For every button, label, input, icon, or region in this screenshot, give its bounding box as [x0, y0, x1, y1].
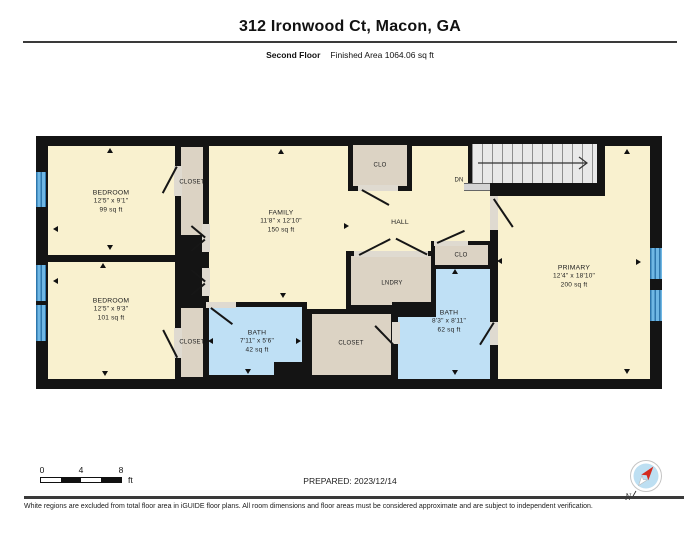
label-bath-large: BATH 8'3" x 8'11" 62 sq ft	[432, 310, 466, 335]
prepared-date: PREPARED: 2023/12/14	[0, 476, 700, 486]
label-hall: HALL	[391, 219, 409, 227]
direction-arrow-icon	[344, 223, 349, 229]
label-clo-small: CLO	[455, 252, 468, 260]
direction-arrow-icon	[102, 371, 108, 376]
direction-arrow-icon	[636, 259, 641, 265]
window	[650, 290, 662, 321]
floor-plan: BEDROOM 12'5" x 9'1" 99 sq ft BEDROOM 12…	[36, 136, 662, 389]
stairs-direction-arrow	[472, 144, 597, 183]
direction-arrow-icon	[452, 269, 458, 274]
window	[36, 265, 46, 301]
scale-tick-labels: 0 4 8	[40, 465, 122, 475]
wall-segment	[392, 302, 436, 317]
direction-arrow-icon	[280, 293, 286, 298]
finished-area-label: Finished Area 1064.06 sq ft	[330, 50, 434, 60]
floor-plan-sheet: { "header": { "title": "312 Ironwood Ct,…	[0, 0, 700, 541]
page-title: 312 Ironwood Ct, Macon, GA	[0, 18, 700, 36]
window	[650, 248, 662, 279]
label-family: FAMILY 11'8" x 12'10" 150 sq ft	[260, 210, 302, 235]
label-bedroom-1: BEDROOM 12'5" x 9'1" 99 sq ft	[93, 190, 130, 215]
direction-arrow-icon	[497, 258, 502, 264]
direction-arrow-icon	[107, 245, 113, 250]
closet-bedroom-1	[181, 147, 203, 235]
floor-label: Second Floor	[266, 50, 320, 60]
label-closet-bottom: CLOSET	[338, 340, 363, 348]
door-opening	[392, 322, 400, 344]
direction-arrow-icon	[624, 149, 630, 154]
floor-subtitle: Second FloorFinished Area 1064.06 sq ft	[0, 50, 700, 60]
direction-arrow-icon	[296, 338, 301, 344]
direction-arrow-icon	[624, 369, 630, 374]
label-primary: PRIMARY 12'4" x 18'10" 200 sq ft	[553, 265, 595, 290]
wall-notch	[274, 362, 310, 379]
window	[36, 172, 46, 207]
direction-arrow-icon	[100, 263, 106, 268]
staircase	[468, 140, 601, 187]
window	[36, 305, 46, 341]
disclaimer-text: White regions are excluded from total fl…	[24, 503, 684, 510]
stair-landing	[464, 183, 490, 191]
direction-arrow-icon	[107, 148, 113, 153]
direction-arrow-icon	[53, 278, 58, 284]
label-bedroom-2: BEDROOM 12'5" x 9'3" 101 sq ft	[93, 298, 130, 323]
label-laundry: LNDRY	[381, 280, 402, 288]
label-stairs-dn: DN	[454, 177, 463, 185]
direction-arrow-icon	[53, 226, 58, 232]
title-divider	[23, 41, 677, 43]
direction-arrow-icon	[452, 370, 458, 375]
direction-arrow-icon	[208, 338, 213, 344]
footer-divider	[24, 496, 684, 499]
direction-arrow-icon	[245, 369, 251, 374]
label-closet-2: CLOSET	[179, 339, 204, 347]
label-clo-top: CLO	[374, 162, 387, 170]
label-closet-1: CLOSET	[179, 179, 204, 187]
label-bath-small: BATH 7'11" x 5'6" 42 sq ft	[240, 330, 274, 355]
direction-arrow-icon	[278, 149, 284, 154]
